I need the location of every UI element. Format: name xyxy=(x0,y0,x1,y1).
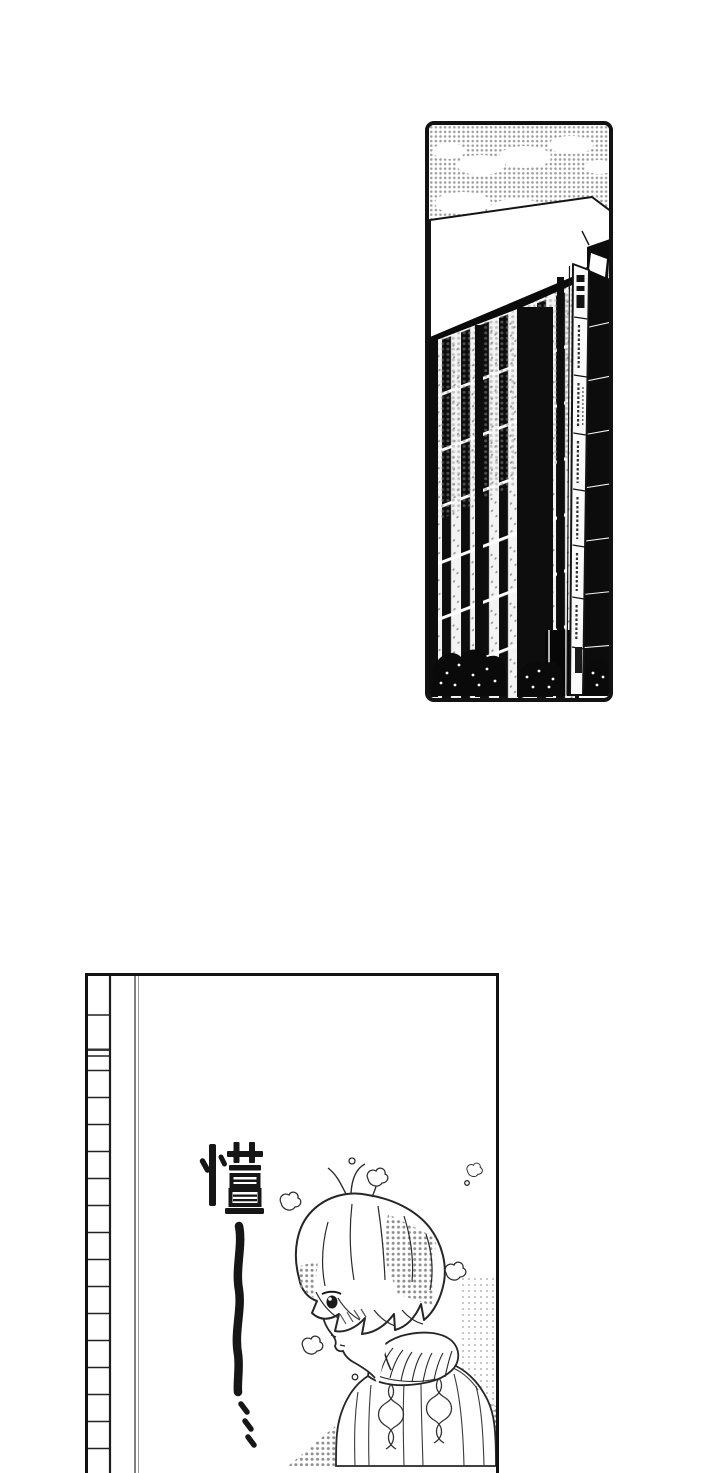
wall-corner-lines xyxy=(135,976,139,1473)
character-illustration xyxy=(88,976,496,1473)
building-illustration xyxy=(429,125,609,698)
sfx-prolongation-dash xyxy=(237,1226,240,1392)
panel-character-sfx: 懂 xyxy=(85,973,499,1473)
sfx-glyph xyxy=(203,1142,265,1214)
mouth-line xyxy=(340,1345,345,1346)
sfx-trailing-dots xyxy=(241,1404,254,1445)
manga-page: { "page": { "background_color": "#ffffff… xyxy=(0,0,720,1440)
panel-building-exterior xyxy=(425,121,613,702)
tiled-wall-edge xyxy=(88,976,110,1473)
eye-highlight xyxy=(328,1297,332,1301)
eye xyxy=(327,1296,338,1309)
sign-base-mark xyxy=(575,647,582,673)
